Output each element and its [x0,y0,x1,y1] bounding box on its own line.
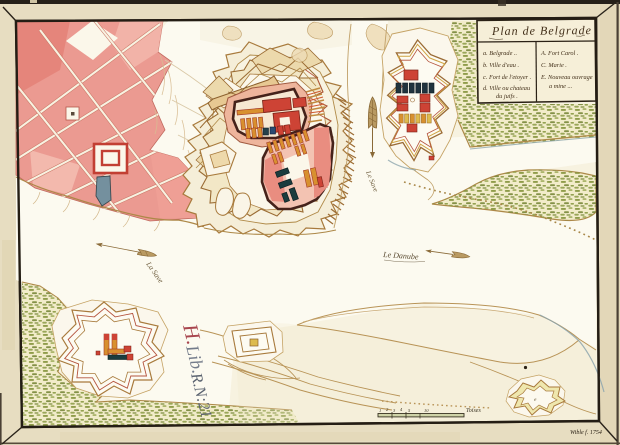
svg-text:Wible f. 1754: Wible f. 1754 [570,429,602,436]
svg-text:c. Fort de l'etoyer .: c. Fort de l'etoyer . [483,74,531,81]
svg-text:a. Belgrade ..: a. Belgrade .. [483,50,517,57]
svg-text:10: 10 [424,408,429,413]
svg-text:1: 1 [379,408,381,413]
svg-text:C. Marie .: C. Marie . [541,62,567,69]
svg-text:d. Ville ou chateau: d. Ville ou chateau [483,85,530,92]
svg-text:E. Nouveau ouvrage: E. Nouveau ouvrage [540,74,593,81]
svg-text:Toises: Toises [466,408,481,414]
svg-text:Plan de Belgrade: Plan de Belgrade [491,23,592,38]
svg-text:du juifs .: du juifs . [496,93,518,100]
svg-text:b. Ville d'eau .: b. Ville d'eau . [483,62,519,69]
svg-text:A. Fort Carol .: A. Fort Carol . [540,50,578,57]
svg-text:a mine ...: a mine ... [549,83,572,90]
